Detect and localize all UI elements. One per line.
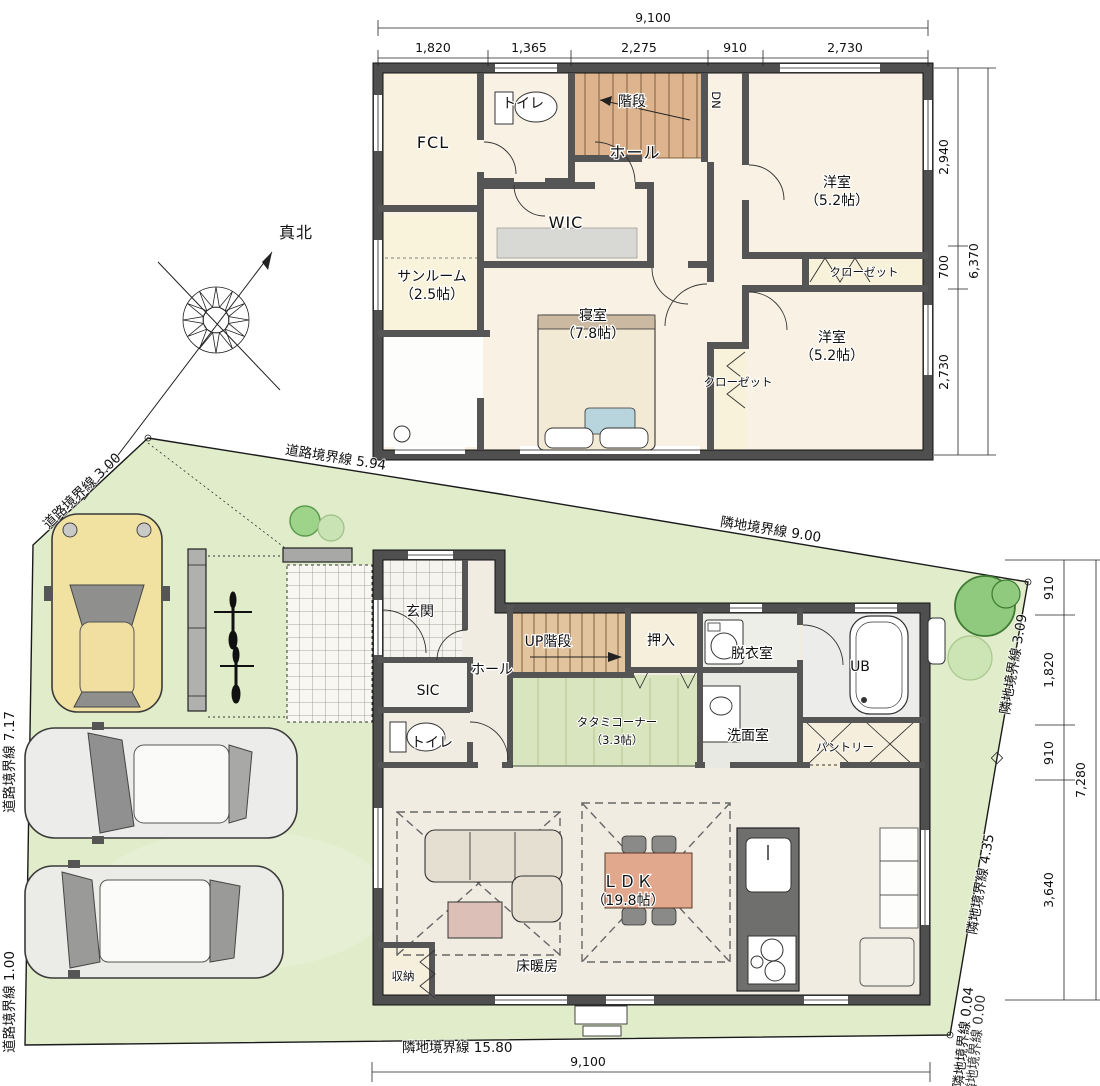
dim-1f-right4: 3,640	[1041, 872, 1056, 908]
label-1f-bath: UB	[850, 659, 870, 675]
dim-2f-seg1: 1,820	[415, 40, 451, 55]
label-2f-bedroom-size: （7.8帖）	[561, 326, 625, 342]
label-1f-dressing: 脱衣室	[731, 645, 773, 662]
dim-1f-right2: 1,820	[1041, 652, 1056, 688]
label-1f-storage: 収納	[392, 969, 415, 983]
car-yellow	[44, 514, 170, 712]
label-2f-fcl: FCL	[417, 133, 449, 152]
true-north-label: 真北	[279, 223, 313, 242]
label-2f-dn: DN	[709, 91, 723, 108]
label-1f-oshiire: 押入	[647, 633, 675, 649]
label-2f-toilet: トイレ	[502, 96, 544, 112]
floor-plan-drawing: 真北	[0, 0, 1100, 1086]
label-2f-wic: WIC	[549, 213, 584, 232]
label-2f-hall: ホール	[609, 143, 660, 162]
label-1f-toilet: トイレ	[411, 735, 453, 751]
dim-1f-right1: 910	[1041, 576, 1056, 600]
label-2f-western-room-1-size: （5.2帖）	[805, 193, 869, 209]
label-road-boundary-100: 道路境界線 1.00	[2, 951, 18, 1053]
label-road-boundary-717: 道路境界線 7.17	[2, 711, 18, 813]
dim-1f-right3: 910	[1041, 741, 1056, 765]
floor1-dims-bottom: 9,100	[372, 1054, 930, 1082]
dim-2f-total-width: 9,100	[635, 10, 671, 25]
label-1f-floor-heating: 床暖房	[516, 959, 558, 975]
floor-plan-page: 真北	[0, 0, 1100, 1086]
north-arrow-icon	[262, 252, 272, 270]
kitchen-cabinet	[880, 828, 918, 928]
label-1f-hall: ホール	[471, 662, 513, 678]
dim-1f-right-total: 7,280	[1073, 762, 1088, 798]
label-2f-stairs: 階段	[618, 94, 646, 110]
floor2-dims-top: 9,100 1,820 1,365 2,275 910 2,730	[378, 10, 928, 66]
label-1f-washroom: 洗面室	[727, 727, 769, 744]
dim-2f-right1: 2,940	[936, 139, 951, 175]
terrace-step	[575, 1006, 627, 1024]
label-2f-sunroom-size: （2.5帖）	[400, 287, 464, 303]
label-2f-western-room-2-size: （5.2帖）	[800, 348, 864, 364]
fence-left	[188, 549, 206, 711]
floor2-dims-right: 2,940 700 2,730 6,370	[934, 68, 996, 455]
label-2f-western-room-2: 洋室	[818, 329, 846, 346]
label-1f-entrance: 玄関	[406, 603, 434, 620]
dim-2f-right-total: 6,370	[966, 243, 981, 279]
label-2f-bedroom: 寝室	[579, 307, 607, 324]
label-1f-ldk: ＬＤＫ	[602, 872, 653, 891]
label-1f-tatami-size: （3.3帖）	[591, 733, 644, 747]
dim-1f-bottom-total: 9,100	[570, 1054, 606, 1069]
floor2-plan: トイレ 階段 DN FCL ホール WIC サンルーム （2.5帖） 寝室 （7…	[373, 10, 996, 460]
dim-2f-right3: 2,730	[936, 354, 951, 390]
label-1f-pantry: パントリー	[816, 740, 874, 754]
car-gray-2	[25, 860, 283, 978]
car-gray-1	[25, 722, 297, 844]
label-1f-sic: SIC	[417, 683, 440, 699]
dim-2f-seg4: 910	[723, 40, 747, 55]
label-adj-boundary-1580: 隣地境界線 15.80	[402, 1040, 512, 1056]
label-1f-tatami: タタミコーナー	[577, 715, 658, 729]
balcony-faucet-icon	[394, 426, 410, 442]
label-1f-stairs-up: UP階段	[525, 634, 572, 650]
label-2f-closet-1: クローゼット	[830, 265, 899, 279]
label-2f-western-room-1: 洋室	[823, 174, 851, 191]
kitchen-counter	[737, 828, 799, 991]
coffee-table-icon	[448, 902, 502, 938]
entrance-approach	[287, 565, 372, 722]
label-1f-ldk-size: （19.8帖）	[591, 893, 664, 909]
dim-2f-right2: 700	[936, 255, 951, 279]
dim-2f-seg2: 1,365	[511, 40, 547, 55]
dim-2f-seg5: 2,730	[827, 40, 863, 55]
dim-2f-seg3: 2,275	[621, 40, 657, 55]
fence-top	[283, 548, 352, 562]
label-2f-sunroom: サンルーム	[397, 269, 467, 285]
label-2f-closet-2: クローゼット	[704, 375, 773, 389]
water-heater-icon	[928, 618, 945, 664]
refrigerator-icon	[860, 938, 914, 986]
